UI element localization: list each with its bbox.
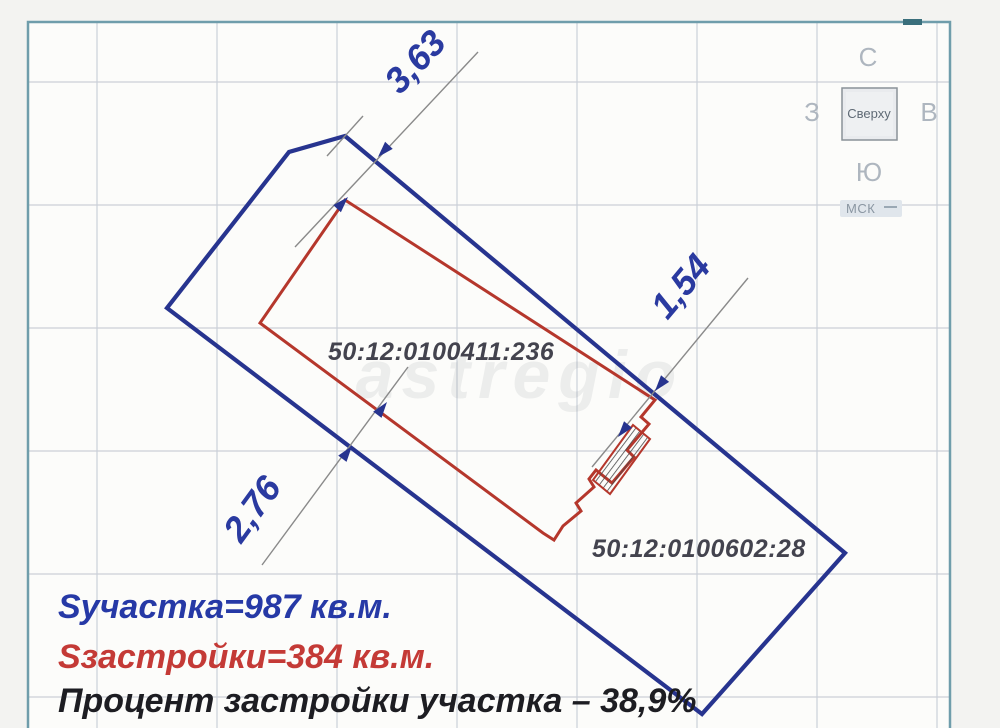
compass-north-label[interactable]: С <box>859 42 878 72</box>
view-top-button-label: Сверху <box>847 106 891 121</box>
plot-area-text: Sучастка=987 кв.м. <box>58 588 392 626</box>
plan-viewport: astregio 3,63 1,54 2,76 50:12:0100411:23… <box>0 0 1000 728</box>
crs-badge[interactable]: МСК <box>840 200 902 217</box>
cadastral-number-building-parcel: 50:12:0100411:236 <box>328 338 555 366</box>
building-area-text: Sзастройки=384 кв.м. <box>58 638 434 676</box>
crs-label: МСК <box>846 201 875 216</box>
cadastral-number-land-parcel: 50:12:0100602:28 <box>592 535 806 563</box>
compass-south-label[interactable]: Ю <box>856 157 882 187</box>
site-plan-canvas: astregio 3,63 1,54 2,76 50:12:0100411:23… <box>0 0 1000 728</box>
compass-east-label[interactable]: В <box>920 97 937 127</box>
view-top-button[interactable]: Сверху <box>842 88 897 140</box>
compass-west-label[interactable]: З <box>804 97 820 127</box>
coverage-percent-text: Процент застройки участка – 38,9% <box>58 682 696 720</box>
